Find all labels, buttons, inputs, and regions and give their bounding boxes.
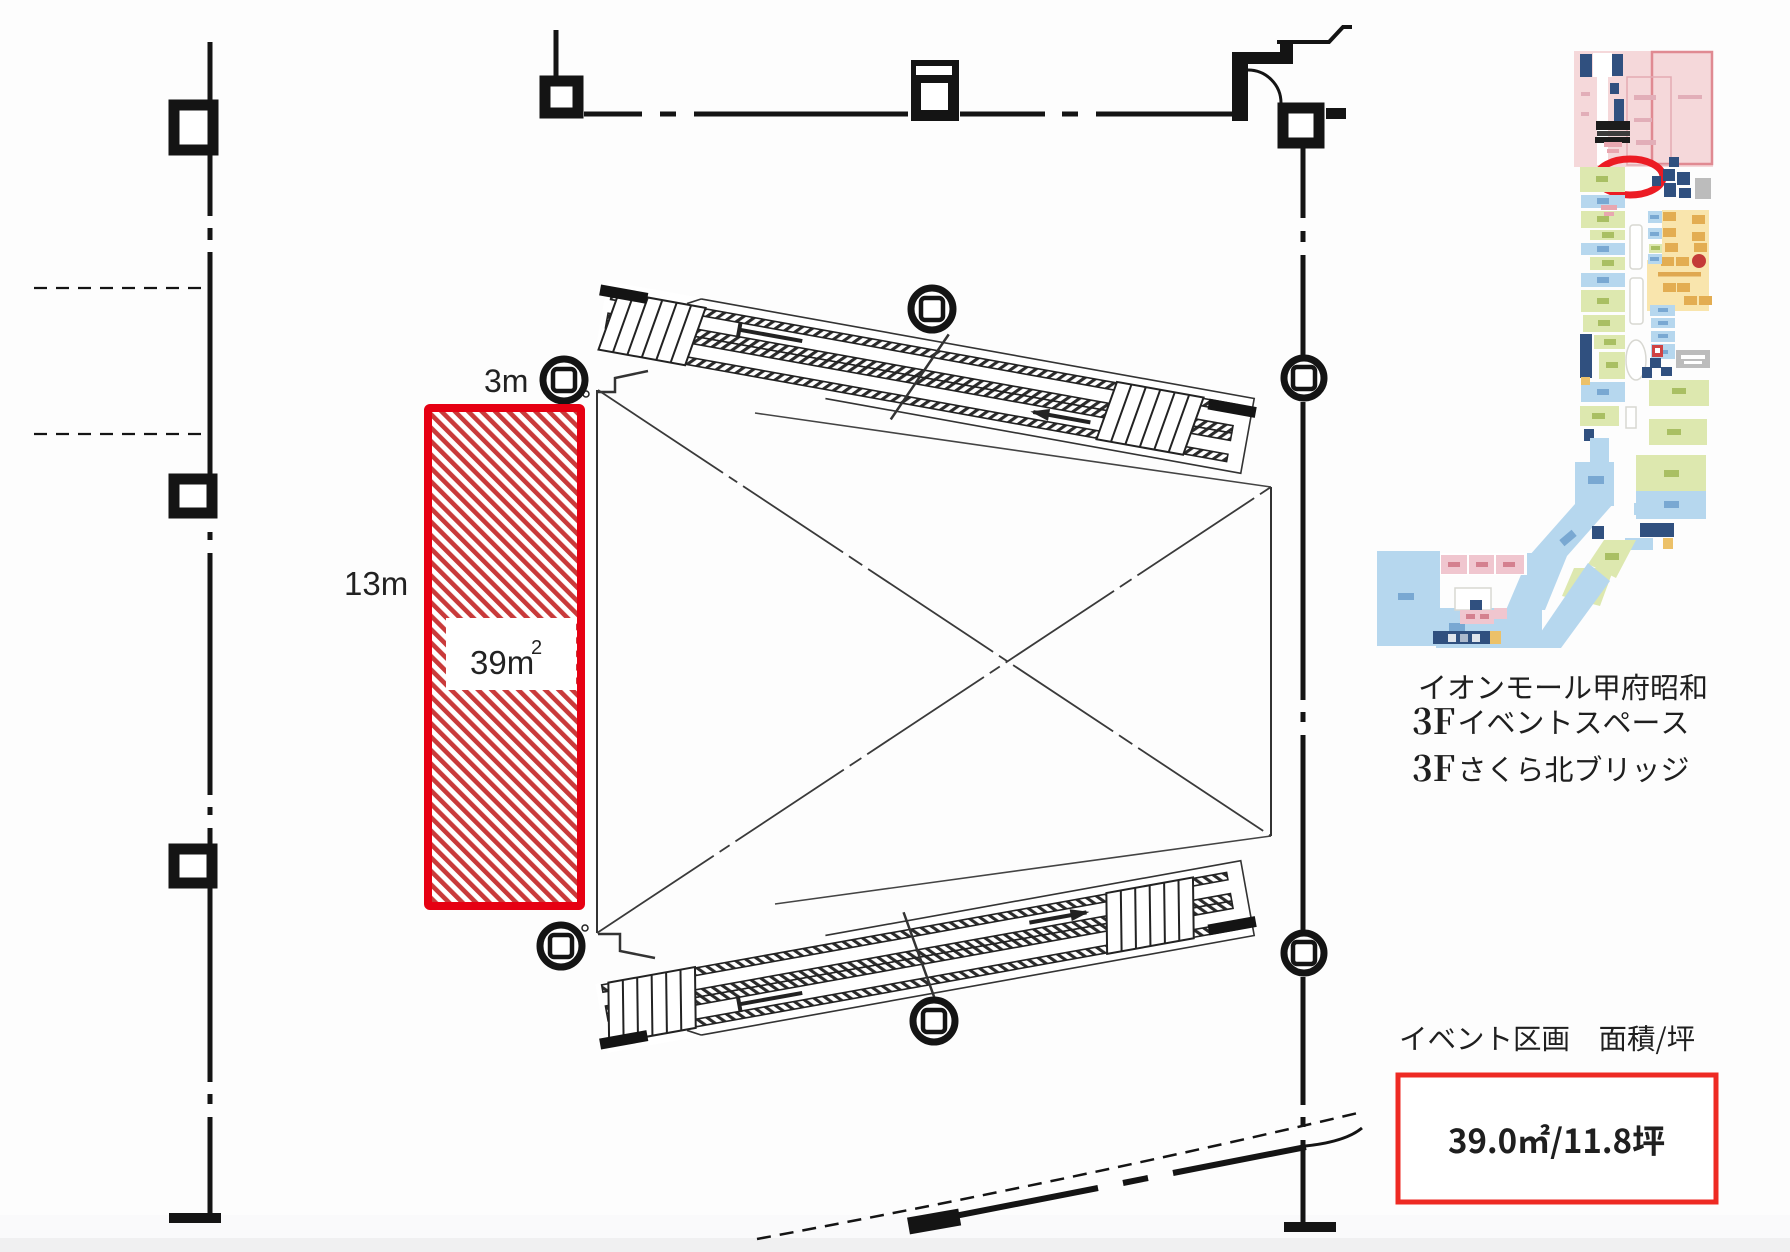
svg-text:3m: 3m: [484, 363, 528, 399]
svg-text:2: 2: [531, 637, 542, 659]
svg-text:39m: 39m: [470, 644, 534, 681]
svg-text:13m: 13m: [344, 565, 408, 602]
